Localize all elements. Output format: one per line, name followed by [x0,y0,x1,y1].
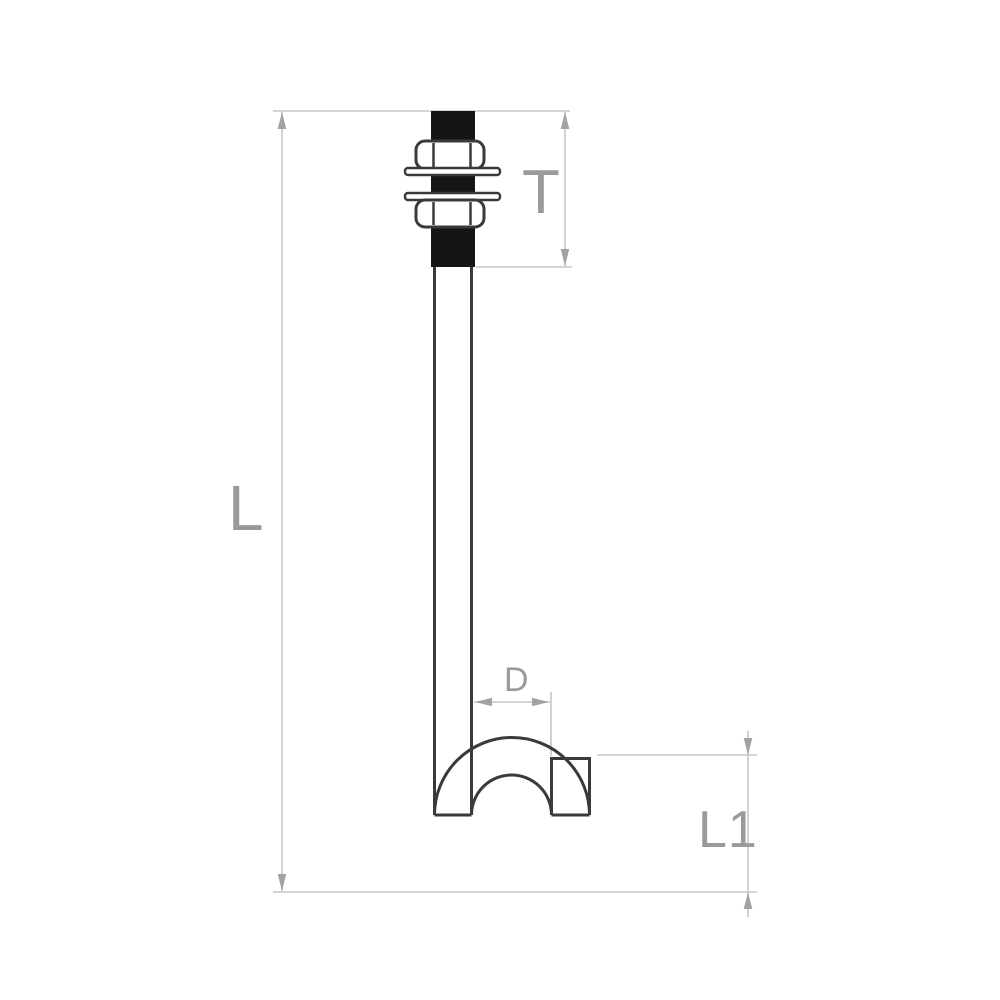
label-total-length-L: L [228,472,265,544]
drawing-canvas: L T D L1 [0,0,1000,1000]
dimension-arrowheads [278,112,753,909]
hook-curve [435,737,590,815]
hex-nut-top [416,141,484,169]
arrow-D-right [532,698,549,707]
j-bolt [405,111,590,815]
dimension-labels: L T D L1 [228,158,758,859]
arrow-D-left [475,698,492,707]
arrow-T-down [561,249,570,266]
label-hook-diameter-D: D [504,661,530,699]
arrow-L-down [278,874,287,891]
label-hook-height-L1: L1 [698,801,758,859]
arrow-L1-top [744,738,753,755]
washer-upper [405,168,500,175]
arrow-L1-bottom [744,892,753,909]
hex-nut-bottom [416,200,484,227]
j-bolt-dimension-diagram: L T D L1 [0,0,1000,1000]
arrow-T-up [561,112,570,129]
dimension-lines [273,111,757,917]
threaded-section [431,111,475,267]
arrow-L-up [278,112,287,129]
label-thread-length-T: T [522,158,561,227]
shank [435,267,472,815]
hook-inner-arc [472,775,552,815]
